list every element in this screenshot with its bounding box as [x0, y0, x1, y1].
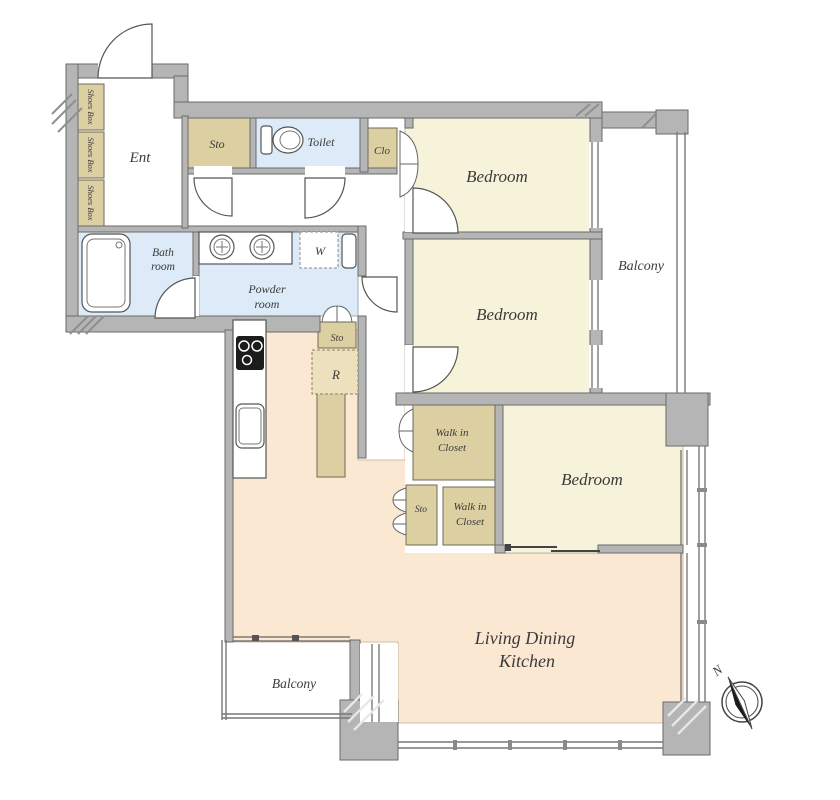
south-window-tick4 — [618, 740, 622, 750]
sliding-door-stop — [505, 544, 511, 551]
floor-plan-canvas: N Shoes Box Shoes Box Shoes Box Ent Sto … — [0, 0, 840, 800]
balcony-right-railing — [677, 132, 685, 393]
wall-bed3-bottom-stub2 — [598, 545, 683, 553]
wall-balcony-column — [350, 640, 360, 702]
kitchen-counter-island — [317, 392, 345, 477]
clo-label: Clo — [374, 145, 390, 157]
wall-bed2-left — [405, 239, 413, 345]
wic2-label-line1: Walk in — [454, 501, 487, 513]
east-rail-tick3 — [697, 620, 707, 624]
toilet-door-opening — [305, 166, 345, 176]
wall-sto-toilet-divider — [250, 118, 256, 168]
entrance-label: Ent — [129, 150, 152, 166]
wall-hall-left-lower — [358, 316, 366, 458]
sto-door-opening — [194, 166, 232, 176]
wall-balcony-post — [656, 110, 688, 134]
toilet-door — [305, 178, 345, 218]
balcony-bottom-label: Balcony — [272, 676, 316, 691]
bedroom2-label: Bedroom — [476, 305, 538, 324]
entrance-door — [98, 24, 152, 78]
wall-bed1-left-stub1 — [405, 118, 413, 128]
south-window-tick3 — [563, 740, 567, 750]
wall-bed3-left — [495, 405, 503, 553]
shoes-box-label-2: Shoes Box — [86, 137, 96, 172]
wall-bath-powder-divider — [193, 232, 199, 276]
wic-storage — [406, 485, 437, 545]
bedroom2-door-opening — [405, 345, 413, 392]
east-rail-tick2 — [697, 543, 707, 547]
bathroom-label-line1: Bath — [152, 247, 174, 259]
balcony-right-label: Balcony — [618, 259, 665, 274]
wic1-label-line2: Closet — [438, 442, 467, 454]
washer-label: W — [315, 244, 326, 258]
bathtub-icon — [82, 234, 130, 312]
wall-hall-left-upper — [358, 226, 366, 276]
fridge-label: R — [331, 367, 340, 382]
bedroom1-label: Bedroom — [466, 167, 528, 186]
balcony-window-sash1 — [252, 635, 259, 641]
wic-sto-label: Sto — [415, 505, 427, 515]
wall-bed3-bottom-stub1 — [495, 545, 505, 553]
wall-bed2-bed3 — [396, 393, 710, 405]
powder-label-line1: Powder — [247, 282, 286, 296]
wall-pillar-bed3 — [666, 393, 708, 446]
hall-storage-label: Sto — [209, 137, 224, 151]
east-rail-tick1 — [697, 488, 707, 492]
bathroom-label-line2: room — [151, 261, 175, 273]
kitchen-sink-icon — [236, 404, 264, 448]
toilet-tank-icon — [261, 126, 272, 154]
south-window-tick2 — [508, 740, 512, 750]
wall-top-mid — [174, 102, 602, 118]
toilet-label: Toilet — [308, 135, 336, 149]
ldk-south-window — [398, 742, 663, 748]
kitchen-sto-label: Sto — [331, 333, 344, 344]
powder-label-line2: room — [255, 297, 280, 311]
bedroom2-window-a — [589, 280, 603, 330]
balcony-window-sash2 — [292, 635, 299, 641]
wall-bathblock-top — [78, 226, 366, 232]
wic1-label-line1: Walk in — [436, 427, 469, 439]
wic1-bifold-door — [399, 409, 413, 452]
wall-ent-right — [182, 116, 188, 228]
shoes-box-label-3: Shoes Box — [86, 185, 96, 220]
east-outer-railing — [699, 446, 705, 702]
shoes-box-label-1: Shoes Box — [86, 89, 96, 124]
south-window-tick1 — [453, 740, 457, 750]
bedroom3-label: Bedroom — [561, 470, 623, 489]
powder-room-door — [362, 277, 397, 312]
wic2-label-line2: Closet — [456, 516, 485, 528]
wall-toilet-right — [360, 118, 368, 172]
hall-storage-door — [194, 178, 232, 216]
wall-ldk-left — [225, 330, 233, 642]
ldk-label-line2: Kitchen — [498, 651, 555, 671]
compass: N — [708, 661, 762, 729]
floor-plan: N Shoes Box Shoes Box Shoes Box Ent Sto … — [0, 0, 840, 800]
compass-north-label: N — [708, 661, 726, 680]
powder-cabinet — [342, 234, 356, 268]
bedroom1-window — [589, 142, 603, 228]
ldk-label-line1: Living Dining — [474, 628, 576, 648]
bedroom2-window-b — [589, 345, 603, 388]
